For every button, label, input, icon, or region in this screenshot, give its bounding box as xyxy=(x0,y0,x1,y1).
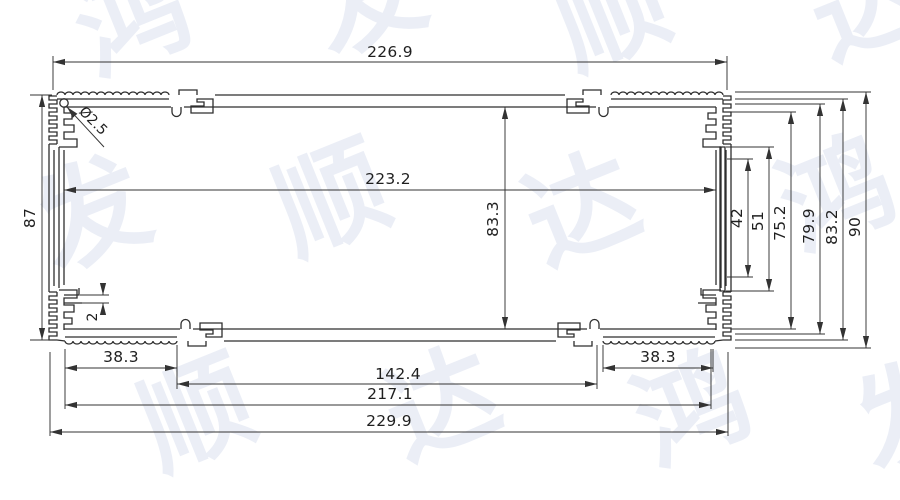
dim-label-38-3-left: 38.3 xyxy=(103,348,139,366)
ext-line-2 xyxy=(80,295,109,303)
dim-label-223-2: 223.2 xyxy=(365,170,411,188)
watermark-char: 达 xyxy=(367,324,517,484)
dim-label-90: 90 xyxy=(846,217,864,237)
dim-label-226-9: 226.9 xyxy=(367,43,413,61)
dim-label-229-9: 229.9 xyxy=(366,412,412,430)
dim-label-51: 51 xyxy=(749,211,767,231)
dim-label-2: 2 xyxy=(85,313,101,322)
watermark-layer: 鸿 发 顺 达 发 顺 达 鸿 顺 达 鸿 发 xyxy=(17,0,900,494)
drawing-canvas: 鸿 发 顺 达 发 顺 达 鸿 顺 达 鸿 发 226.9 223.2 87 Ø… xyxy=(0,0,900,500)
watermark-char: 发 xyxy=(292,0,442,79)
profile-drawing: 鸿 发 顺 达 发 顺 达 鸿 顺 达 鸿 发 226.9 223.2 87 Ø… xyxy=(0,0,900,500)
dim-label-87: 87 xyxy=(21,208,39,228)
dim-label-75-2: 75.2 xyxy=(771,205,789,241)
dim-label-83-3: 83.3 xyxy=(484,201,502,237)
watermark-char: 鸿 xyxy=(762,114,900,274)
screw-hole-circle xyxy=(60,99,68,107)
watermark-char: 发 xyxy=(837,334,900,494)
watermark-char: 顺 xyxy=(537,0,687,94)
dim-label-217-1: 217.1 xyxy=(367,385,413,403)
dim-label-83-2: 83.2 xyxy=(823,209,841,245)
dim-label-38-3-right: 38.3 xyxy=(640,348,676,366)
watermark-char: 达 xyxy=(792,0,900,84)
dim-label-142-4: 142.4 xyxy=(375,365,421,383)
watermark-char: 顺 xyxy=(122,334,272,494)
watermark-char: 顺 xyxy=(257,119,407,279)
dim-label-42: 42 xyxy=(728,208,746,228)
dim-label-79-9: 79.9 xyxy=(800,208,818,244)
watermark-char: 达 xyxy=(507,129,657,289)
watermark-char: 发 xyxy=(17,134,167,294)
watermark-char: 鸿 xyxy=(57,0,207,99)
